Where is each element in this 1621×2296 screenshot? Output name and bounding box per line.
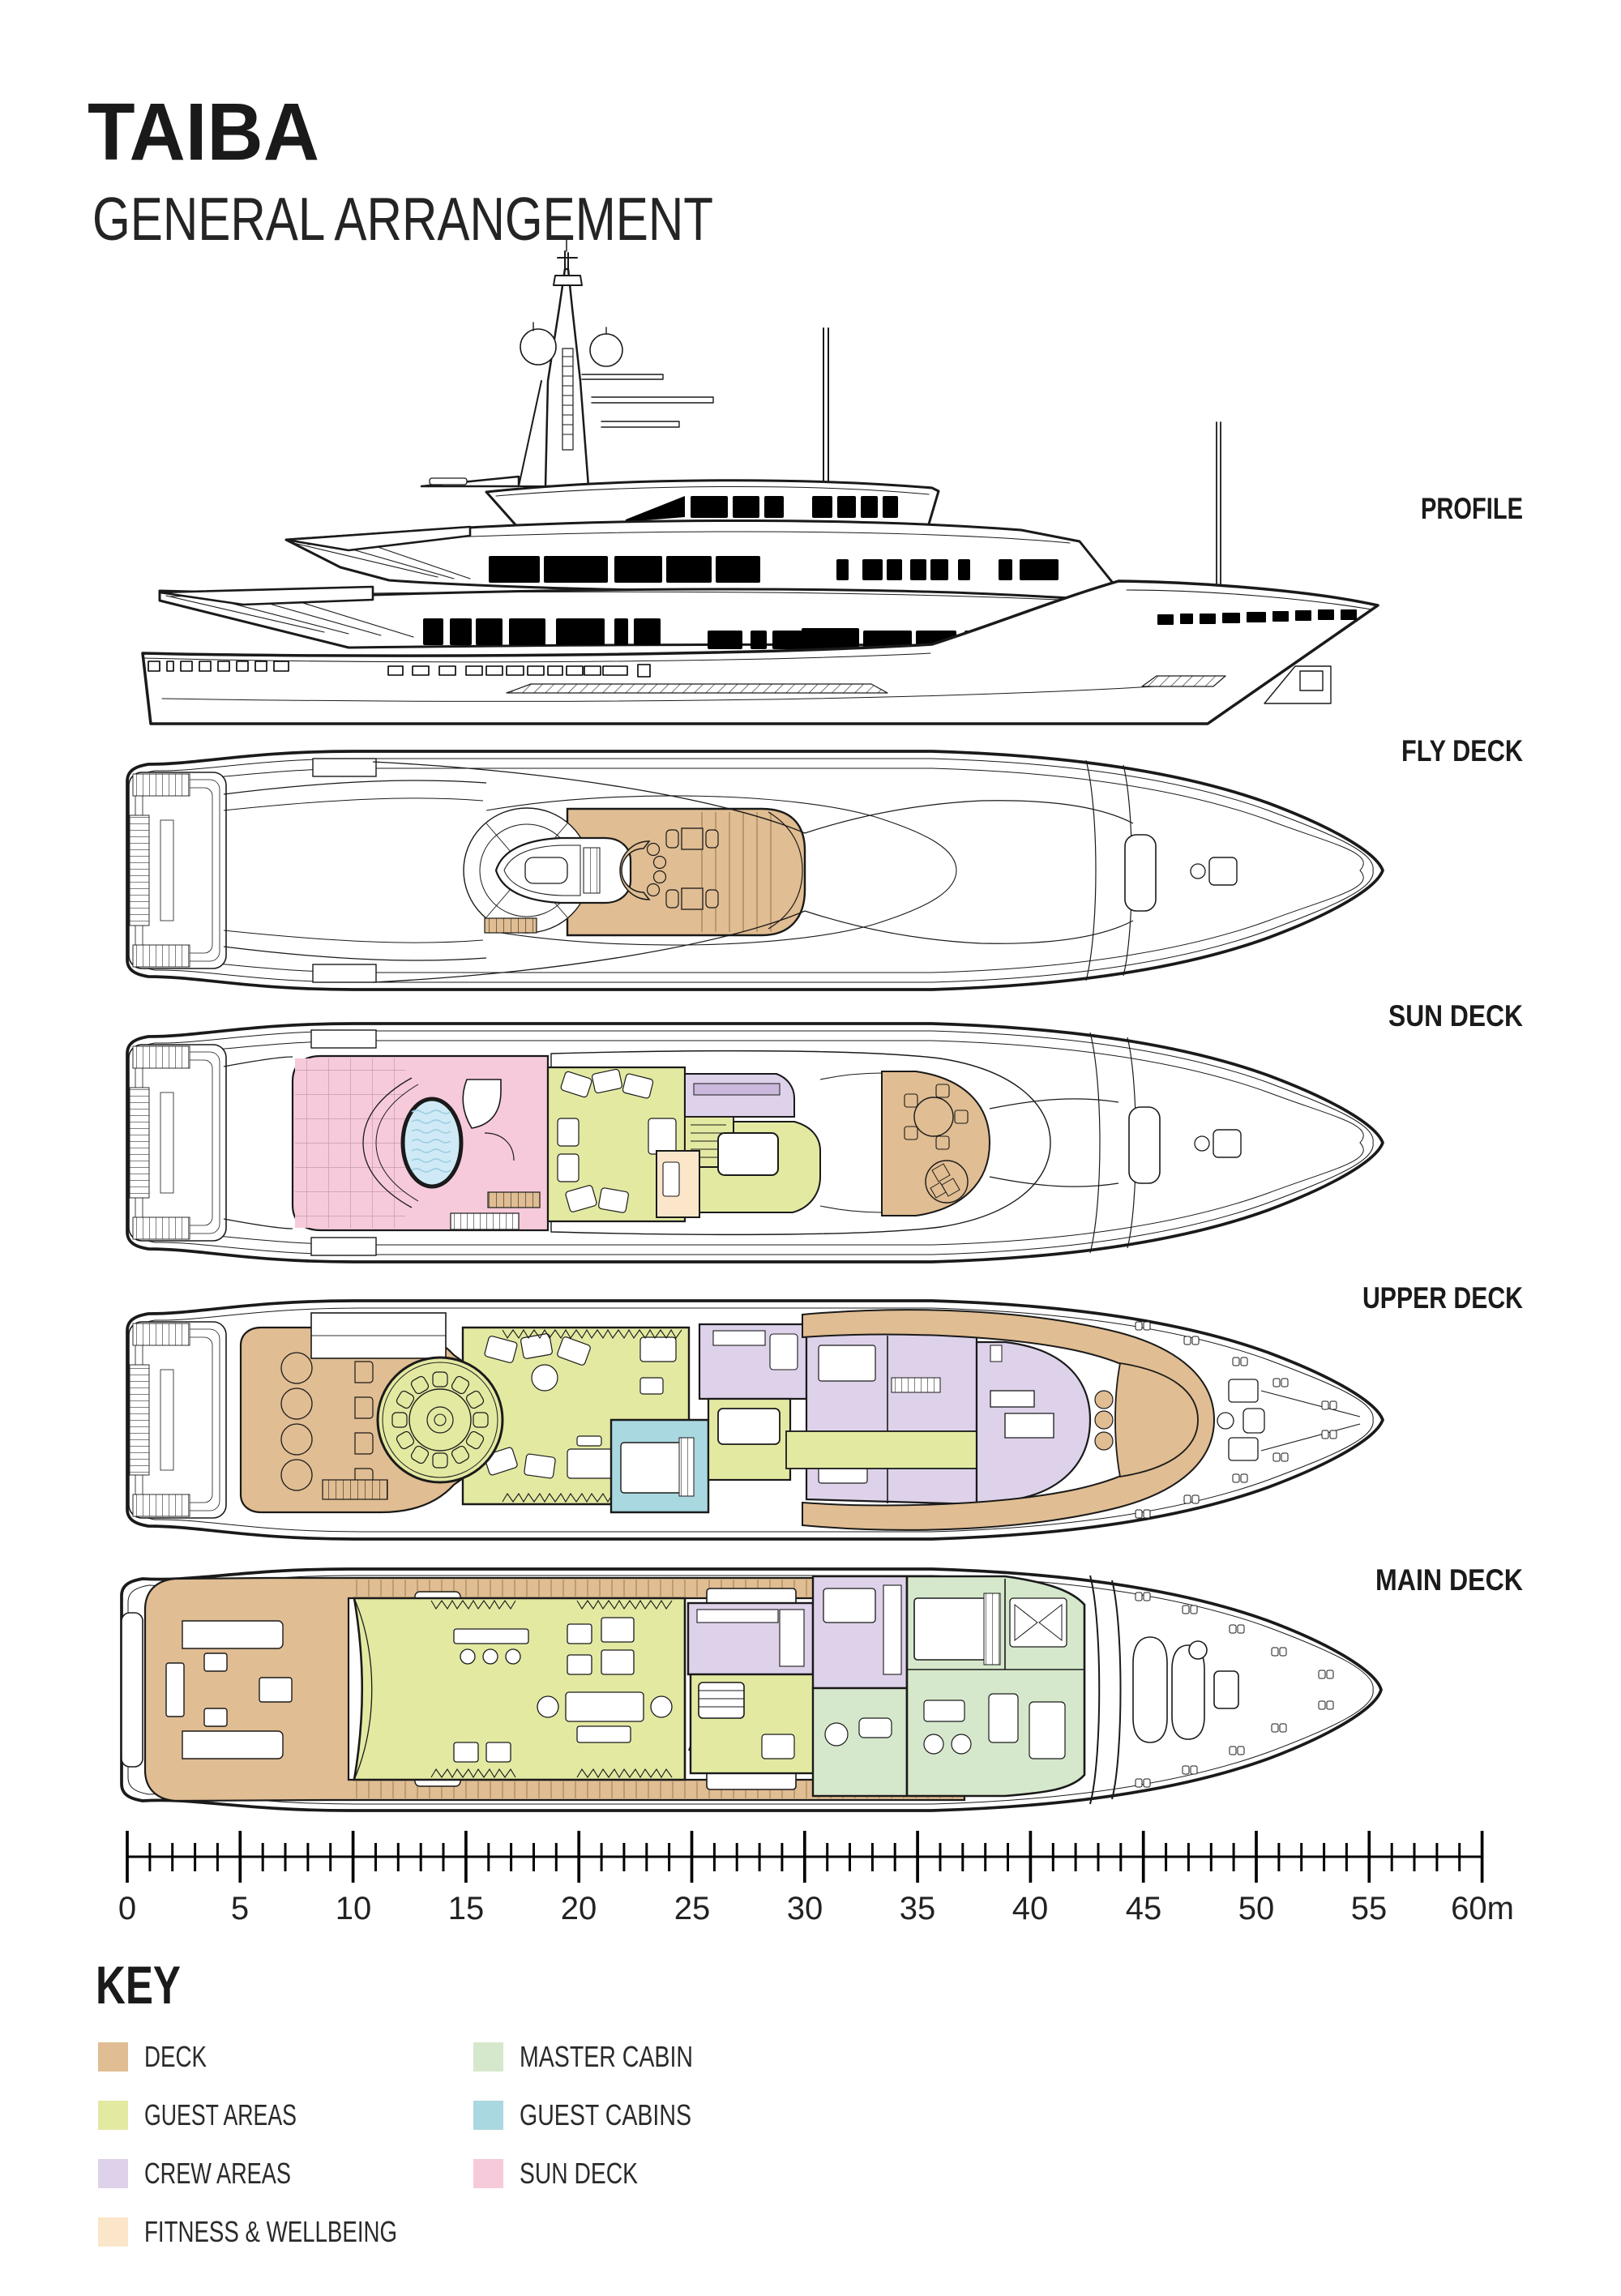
svg-text:KEY: KEY [96, 1955, 181, 2015]
svg-text:PROFILE: PROFILE [1421, 492, 1523, 525]
svg-text:15: 15 [448, 1891, 485, 1926]
svg-text:GENERAL ARRANGEMENT: GENERAL ARRANGEMENT [92, 185, 713, 253]
svg-text:MASTER CABIN: MASTER CABIN [520, 2040, 693, 2073]
svg-text:FITNESS & WELLBEING: FITNESS & WELLBEING [144, 2215, 397, 2248]
svg-text:25: 25 [674, 1891, 711, 1926]
svg-text:CREW AREAS: CREW AREAS [144, 2157, 291, 2190]
svg-text:MAIN DECK: MAIN DECK [1375, 1563, 1523, 1597]
svg-text:35: 35 [900, 1891, 936, 1926]
svg-text:30: 30 [787, 1891, 823, 1926]
svg-text:SUN DECK: SUN DECK [1388, 999, 1523, 1033]
svg-text:UPPER DECK: UPPER DECK [1362, 1281, 1523, 1315]
svg-text:10: 10 [336, 1891, 372, 1926]
svg-text:5: 5 [231, 1891, 249, 1926]
svg-text:45: 45 [1126, 1891, 1162, 1926]
svg-text:TAIBA: TAIBA [88, 87, 319, 177]
svg-text:20: 20 [561, 1891, 597, 1926]
svg-text:SUN DECK: SUN DECK [520, 2157, 638, 2190]
svg-text:FLY DECK: FLY DECK [1401, 734, 1523, 767]
svg-text:DECK: DECK [144, 2040, 207, 2073]
svg-text:GUEST AREAS: GUEST AREAS [144, 2098, 297, 2131]
svg-text:GUEST CABINS: GUEST CABINS [520, 2098, 691, 2131]
svg-text:40: 40 [1012, 1891, 1049, 1926]
svg-text:60m: 60m [1451, 1891, 1514, 1926]
svg-text:55: 55 [1351, 1891, 1388, 1926]
svg-text:0: 0 [118, 1891, 136, 1926]
svg-text:50: 50 [1238, 1891, 1275, 1926]
